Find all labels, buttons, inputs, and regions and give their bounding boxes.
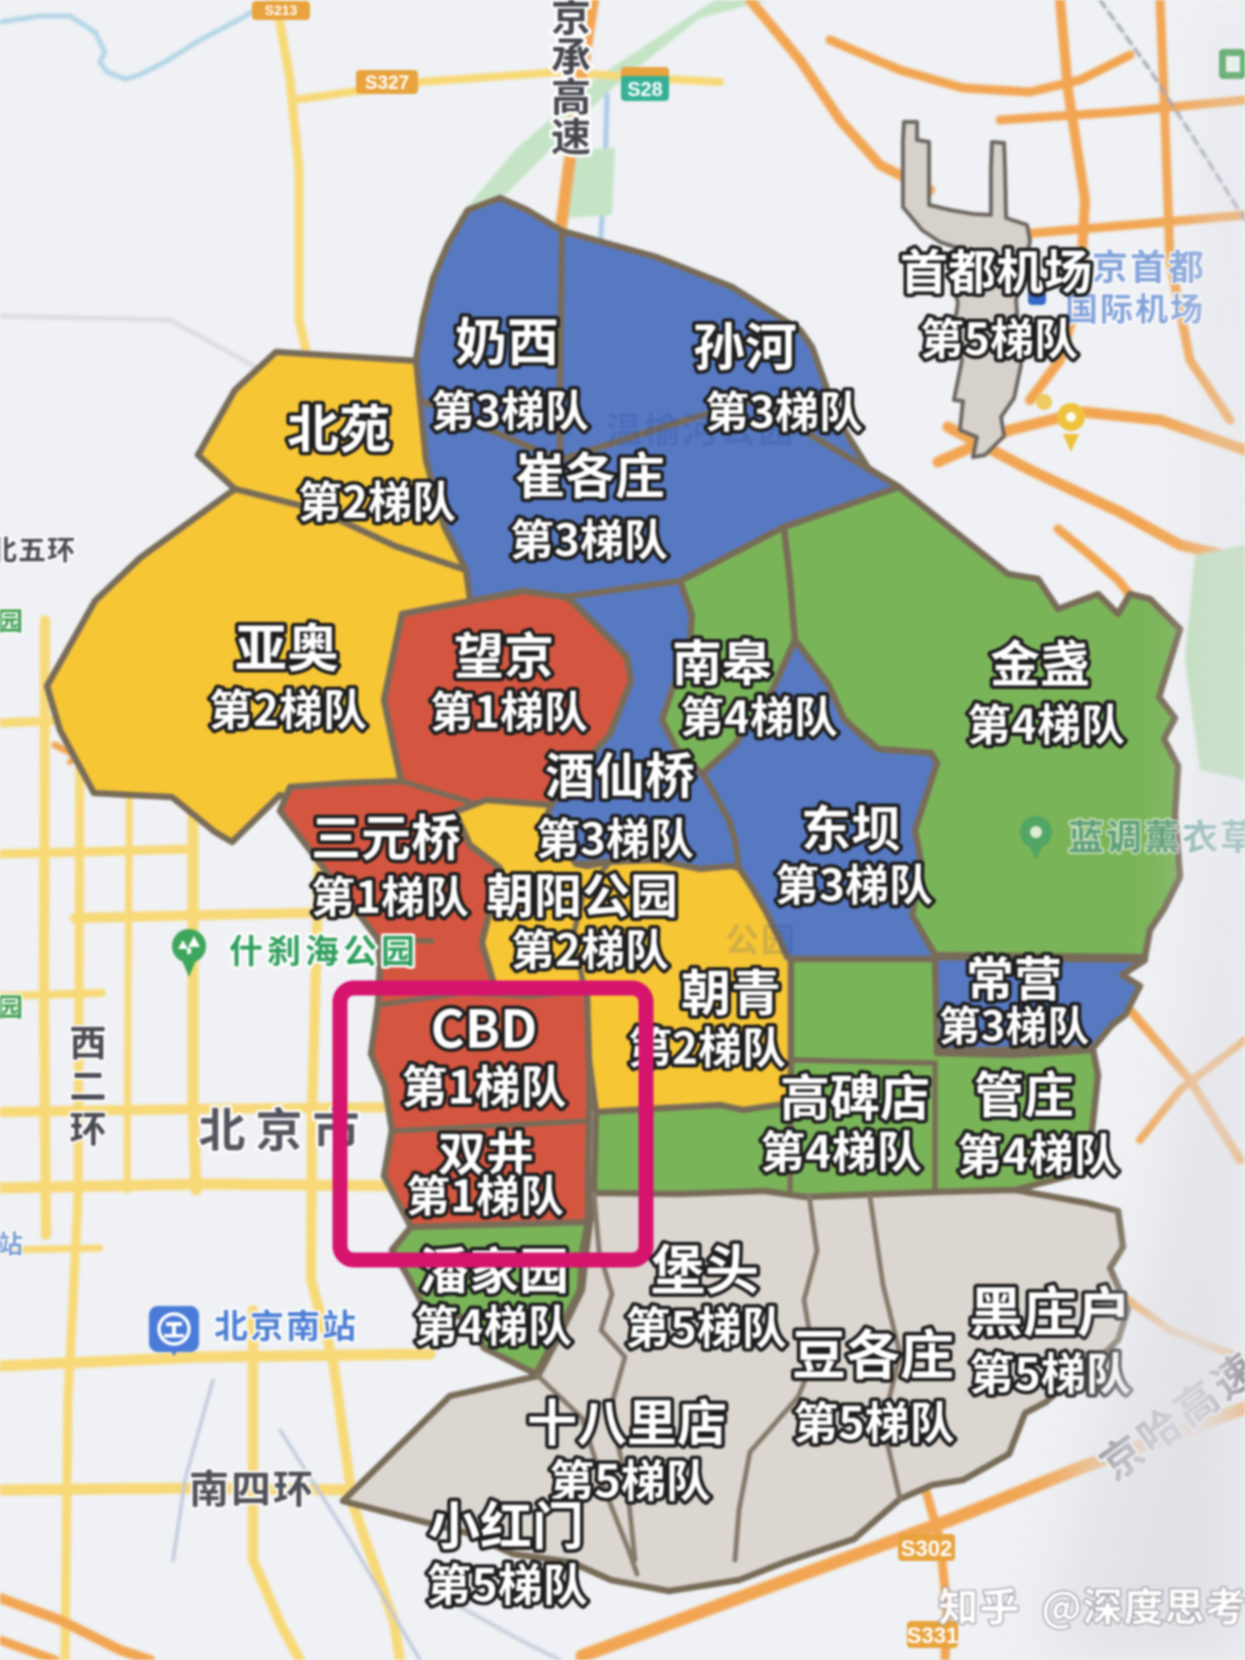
svg-text:S213: S213 [265,2,298,18]
svg-text:S28: S28 [627,79,663,101]
svg-text:S331: S331 [907,1623,958,1648]
svg-text:S327: S327 [365,73,409,94]
svg-text:S302: S302 [901,1536,952,1561]
